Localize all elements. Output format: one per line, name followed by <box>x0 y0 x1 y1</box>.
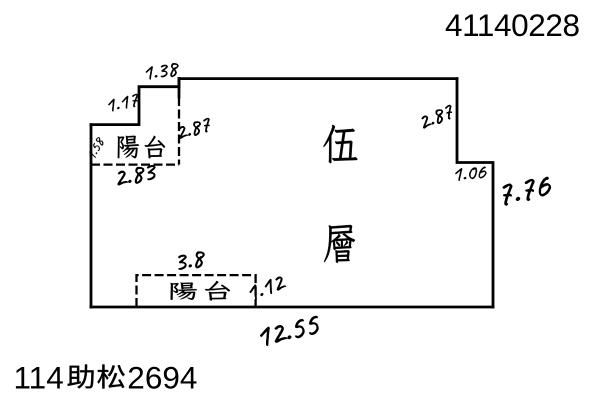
svg-text:114: 114 <box>14 360 64 396</box>
svg-text:41140228: 41140228 <box>445 7 580 43</box>
svg-text:2694: 2694 <box>127 360 197 396</box>
